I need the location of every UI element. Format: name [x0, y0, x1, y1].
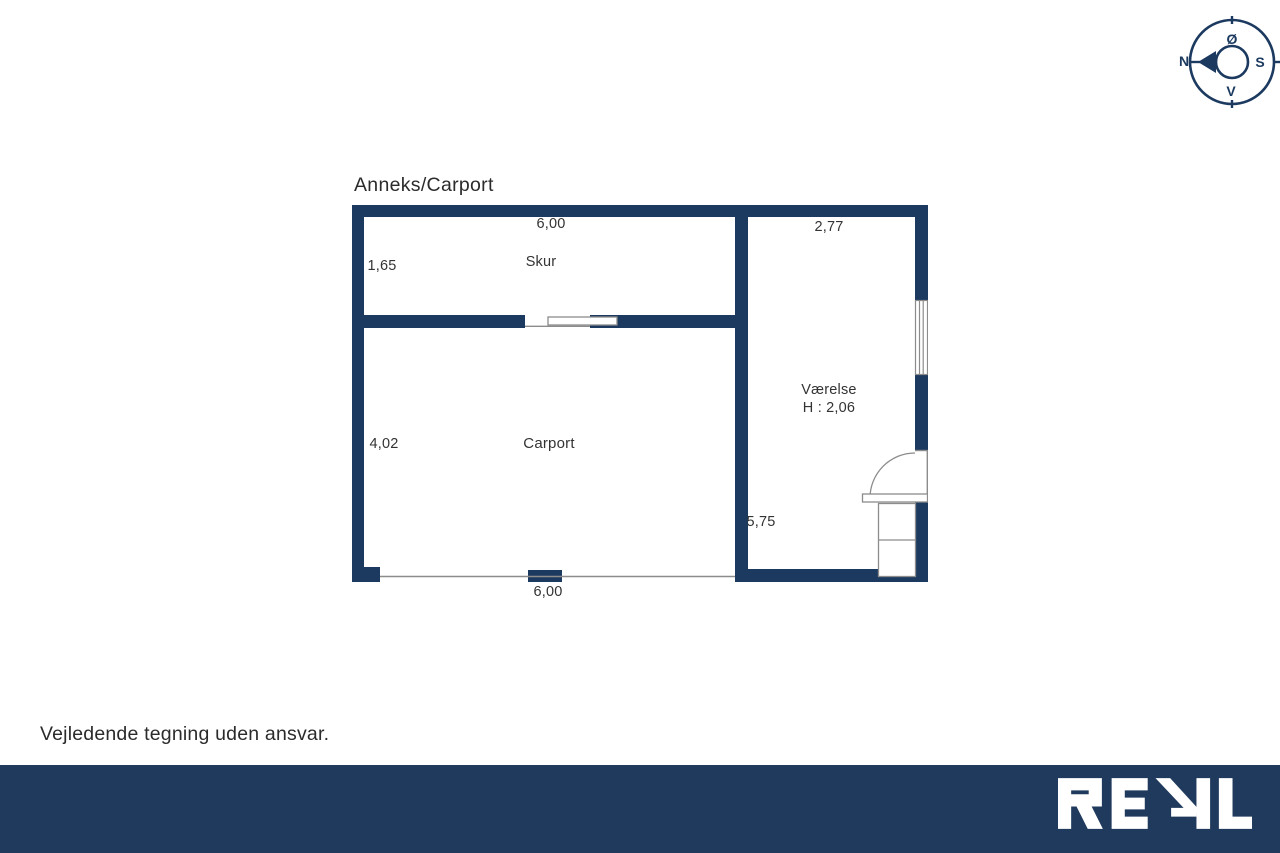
- dim-carport-width: 6,00: [508, 584, 588, 600]
- thin-lines: [380, 326, 928, 576]
- closet: [879, 504, 916, 577]
- compass-label-north: N: [1179, 53, 1189, 69]
- dim-skur-width: 6,00: [511, 216, 591, 232]
- room-label-carport: Carport: [499, 436, 599, 452]
- dim-vaerelse-depth: 5,75: [736, 514, 786, 530]
- compass-label-south: S: [1255, 54, 1264, 70]
- wall-skur-carport-left: [352, 315, 525, 328]
- wall-right-upper: [915, 205, 928, 300]
- door-icon: [863, 453, 928, 502]
- logo-letter-l: [1219, 778, 1252, 829]
- door-leaf: [863, 494, 928, 502]
- plan-title: Anneks/Carport: [354, 174, 494, 197]
- compass-inner-ring: [1216, 46, 1248, 78]
- sliding-door-icon: [548, 317, 617, 325]
- logo-letter-a: [1156, 778, 1211, 829]
- dim-skur-depth: 1,65: [357, 258, 407, 274]
- logo-letter-r: [1058, 778, 1103, 829]
- compass-label-west: V: [1226, 83, 1236, 99]
- compass-icon: Ø S V N: [1176, 10, 1280, 114]
- compass-north-arrow-icon: [1198, 51, 1216, 73]
- wall-top: [352, 205, 928, 217]
- logo-letter-e: [1112, 778, 1148, 829]
- disclaimer-text: Vejledende tegning uden ansvar.: [40, 723, 329, 746]
- window-icon: [916, 301, 928, 375]
- wall-stub-bottom-left: [352, 567, 380, 582]
- dim-carport-depth: 4,02: [359, 436, 409, 452]
- vaerelse-ceiling-height: H : 2,06: [779, 400, 879, 416]
- wall-right-middle: [915, 375, 928, 450]
- room-label-skur: Skur: [501, 254, 581, 270]
- wall-right-lower: [915, 502, 928, 582]
- compass-label-east: Ø: [1227, 31, 1238, 47]
- window-frame: [916, 301, 928, 375]
- floorplan-page: Ø S V N Anneks/Carport: [0, 0, 1280, 853]
- dim-vaerelse-width: 2,77: [789, 219, 869, 235]
- door-swing-arc: [870, 453, 915, 498]
- real-logo: [1058, 778, 1253, 830]
- room-label-vaerelse: Værelse: [779, 382, 879, 398]
